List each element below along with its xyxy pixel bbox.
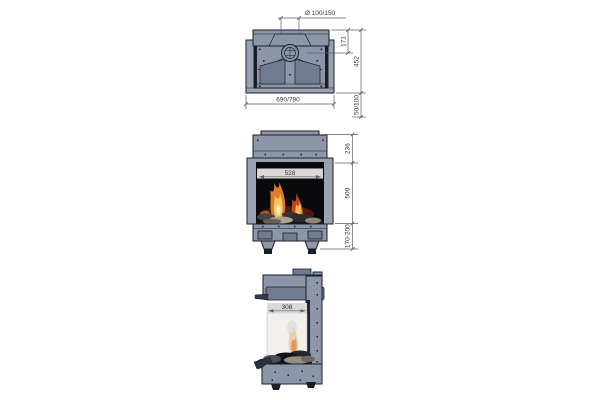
dim-total-width: 690/790 xyxy=(244,95,336,109)
dim-label-total-width: 690/790 xyxy=(276,97,300,104)
top-view xyxy=(246,30,334,93)
side-left-ledge xyxy=(255,294,268,300)
front-right-foot xyxy=(308,249,316,254)
front-right-leg xyxy=(305,241,319,249)
side-rear-foot xyxy=(306,382,316,388)
front-base xyxy=(253,224,327,254)
dim-side-glass-width: 308 xyxy=(267,303,307,313)
dim-label-base-height: 170-200 xyxy=(345,224,352,248)
dim-front-glass-width: 528 xyxy=(257,169,323,179)
dim-wall-clearance: 50/100 xyxy=(352,93,366,119)
dim-label-flue-diameter: Ø 100/150 xyxy=(305,10,336,17)
front-top-lip xyxy=(261,131,319,135)
dim-label-total-depth: 452 xyxy=(354,56,361,67)
front-view: 528 xyxy=(247,131,333,254)
front-left-leg xyxy=(261,241,275,249)
dim-label-glass-height: 500 xyxy=(345,187,352,198)
dim-label-flue-center-depth: 171 xyxy=(341,36,348,47)
dim-label-top-section-height: 236 xyxy=(345,143,352,154)
dim-label-side-glass-width: 308 xyxy=(282,304,293,311)
front-left-foot xyxy=(264,249,272,254)
side-front-foot xyxy=(271,384,281,390)
side-view: 308 xyxy=(254,269,324,390)
side-base xyxy=(262,364,322,390)
dim-label-front-glass-width: 528 xyxy=(285,170,296,177)
dim-label-wall-clearance: 50/100 xyxy=(354,95,361,115)
top-view-flue-plate xyxy=(253,30,329,46)
fireplace-dimension-drawing: Ø 100/150 171 452 50/100 xyxy=(0,0,600,400)
